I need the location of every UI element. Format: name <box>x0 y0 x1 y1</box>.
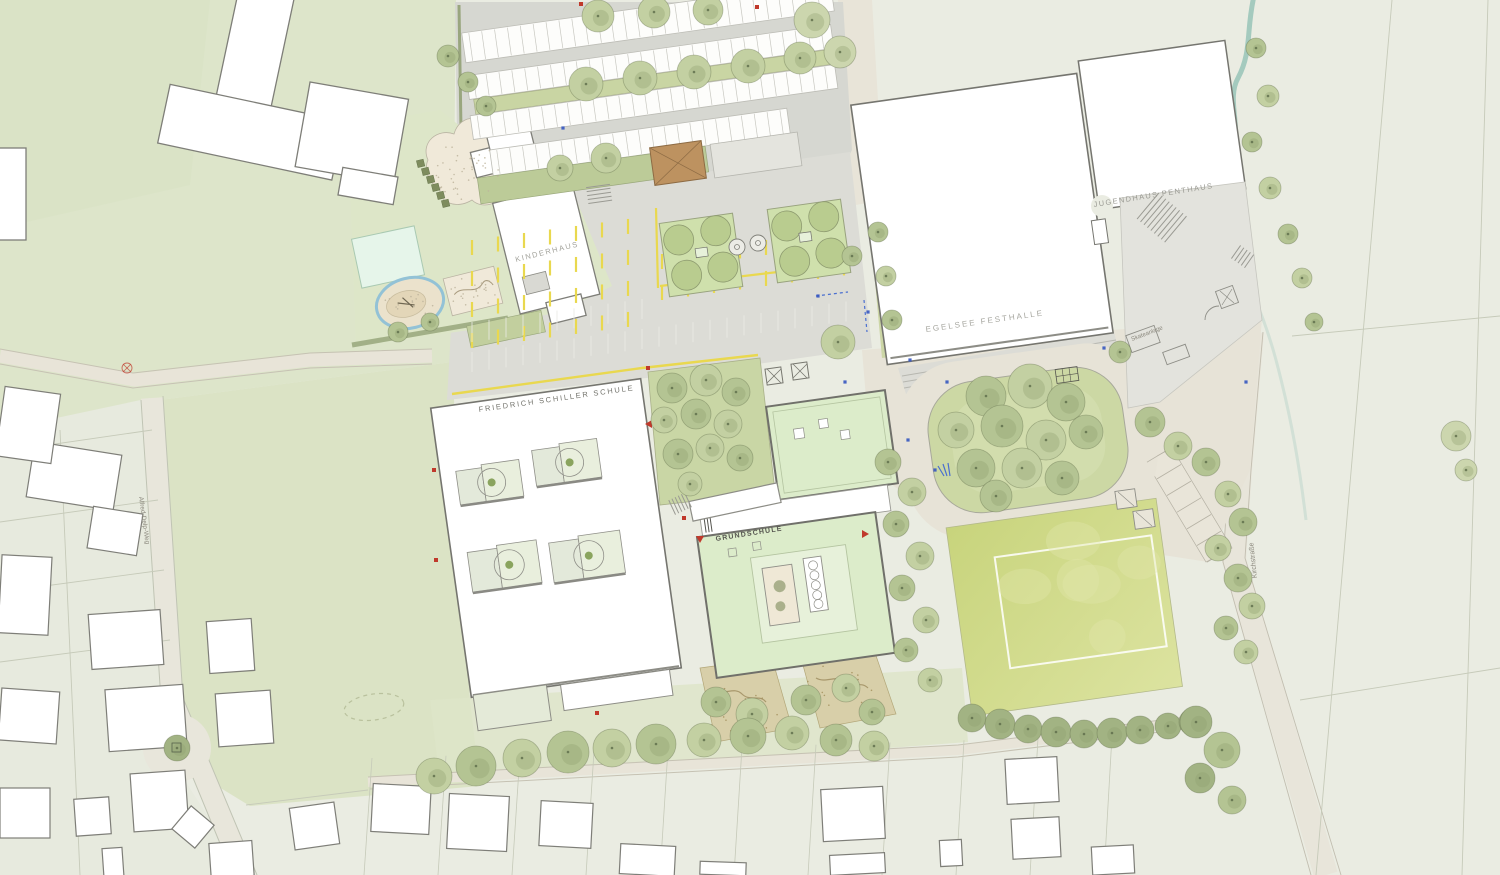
tree-icon <box>1205 535 1231 561</box>
tree-icon <box>421 313 439 331</box>
house <box>1011 817 1061 859</box>
tree-icon <box>696 434 724 462</box>
tree-icon <box>1185 763 1215 793</box>
planter-box <box>431 183 439 191</box>
entrance-marker-red <box>595 711 599 715</box>
tree-icon <box>875 449 901 475</box>
tree-icon <box>681 399 711 429</box>
tree-icon <box>859 699 885 725</box>
field-mottle <box>1057 559 1100 602</box>
tree-icon <box>958 704 986 732</box>
field-mottle <box>1089 619 1126 654</box>
marker-blue <box>908 358 911 361</box>
tree-icon <box>663 439 693 469</box>
tree-icon <box>437 45 459 67</box>
tree-icon <box>1224 564 1252 592</box>
house <box>209 841 254 875</box>
house <box>0 386 61 463</box>
tree-icon <box>569 67 603 101</box>
tree-icon <box>638 0 670 28</box>
house <box>289 802 339 850</box>
tree-icon <box>547 731 589 773</box>
tree-icon <box>731 49 765 83</box>
tree-icon <box>714 410 742 438</box>
planter-box <box>436 191 444 199</box>
tree-icon <box>906 542 934 570</box>
tree-icon <box>889 575 915 601</box>
tree-icon <box>824 36 856 68</box>
tree-icon <box>985 709 1015 739</box>
house <box>0 555 52 636</box>
tree-icon <box>582 0 614 32</box>
tree-icon <box>1218 786 1246 814</box>
tree-icon <box>1164 432 1192 460</box>
tree-icon <box>164 735 190 761</box>
house <box>0 788 50 838</box>
marker-blue <box>816 294 819 297</box>
tree-icon <box>623 61 657 95</box>
tree-icon <box>1047 383 1085 421</box>
site-plan: FRIEDRICH SCHILLER SCHULE GRUNDSCHULE KI… <box>0 0 1500 875</box>
tree-icon <box>821 325 855 359</box>
tree-icon <box>547 155 573 181</box>
tree-icon <box>1246 38 1266 58</box>
tree-icon <box>388 322 408 342</box>
tree-icon <box>859 731 889 761</box>
grundschule-upper-roof <box>766 390 898 500</box>
tree-icon <box>678 472 702 496</box>
planter-box <box>426 175 434 183</box>
field-mottle <box>998 569 1051 605</box>
house <box>371 784 431 835</box>
tree-icon <box>1097 718 1127 748</box>
site-plan-svg: FRIEDRICH SCHILLER SCHULE GRUNDSCHULE KI… <box>0 0 1500 875</box>
tree-icon <box>1155 713 1181 739</box>
entrance-marker-red <box>682 516 686 520</box>
house <box>87 506 143 555</box>
play-island <box>767 199 851 283</box>
play-island <box>659 213 743 297</box>
tree-icon <box>876 266 896 286</box>
play-equipment <box>799 232 812 243</box>
house <box>102 847 124 875</box>
house <box>1005 757 1059 805</box>
entrance-marker-red <box>646 366 650 370</box>
tree-icon <box>1008 364 1052 408</box>
tree-icon <box>1002 448 1042 488</box>
tree-icon <box>476 96 496 116</box>
tree-icon <box>1292 268 1312 288</box>
tree-icon <box>898 478 926 506</box>
entrance-marker-red <box>432 468 436 472</box>
tree-icon <box>980 480 1012 512</box>
planter-box <box>441 199 449 207</box>
tree-icon <box>1014 715 1042 743</box>
tree-icon <box>820 724 852 756</box>
marker-blue <box>866 310 869 313</box>
house <box>830 853 886 875</box>
tree-icon <box>1041 717 1071 747</box>
marker-blue <box>843 380 846 383</box>
field-mottle <box>1117 546 1160 580</box>
tree-icon <box>503 739 541 777</box>
tree-icon <box>416 758 452 794</box>
tree-icon <box>775 716 809 750</box>
tree-icon <box>456 746 496 786</box>
marker-blue <box>1244 380 1247 383</box>
house <box>206 618 255 673</box>
entrance-marker-red <box>755 5 759 9</box>
house <box>700 861 746 875</box>
tree-icon <box>842 246 862 266</box>
house <box>88 610 164 670</box>
tree-icon <box>1109 341 1131 363</box>
marker-blue <box>906 438 909 441</box>
house <box>821 786 886 841</box>
house <box>447 793 510 851</box>
tree-icon <box>1215 481 1241 507</box>
tree-icon <box>687 723 721 757</box>
tree-icon <box>791 685 821 715</box>
tree-icon <box>882 310 902 330</box>
play-equipment <box>695 247 708 258</box>
marker-blue <box>933 468 936 471</box>
house <box>0 688 60 744</box>
tree-icon <box>1069 415 1103 449</box>
tree-icon <box>657 373 687 403</box>
house <box>939 839 962 866</box>
tree-icon <box>913 607 939 633</box>
tree-icon <box>832 674 860 702</box>
tree-icon <box>1234 640 1258 664</box>
entrance-marker-red <box>579 2 583 6</box>
planter-box <box>421 167 429 175</box>
tree-icon <box>1229 508 1257 536</box>
tree-icon <box>1045 461 1079 495</box>
tree-icon <box>636 724 676 764</box>
tree-icon <box>722 378 750 406</box>
tree-icon <box>1455 459 1477 481</box>
tree-icon <box>1214 616 1238 640</box>
marker-blue <box>561 126 564 129</box>
entrance-marker-red <box>434 558 438 562</box>
tree-icon <box>981 405 1023 447</box>
building-friedrich-schiller-schule <box>431 379 686 731</box>
tree-icon <box>1180 706 1212 738</box>
house <box>1091 845 1134 875</box>
house <box>539 801 593 849</box>
tree-icon <box>794 2 830 38</box>
field-mottle <box>1046 521 1100 560</box>
tree-icon <box>1278 224 1298 244</box>
tree-icon <box>894 638 918 662</box>
planter-box <box>416 159 424 167</box>
tree-icon <box>1070 720 1098 748</box>
house <box>215 690 274 747</box>
marker-blue <box>945 380 948 383</box>
tree-icon <box>651 407 677 433</box>
outbuilding <box>0 148 26 240</box>
tree-icon <box>677 55 711 89</box>
tree-icon <box>730 718 766 754</box>
tree-icon <box>1204 732 1240 768</box>
tree-icon <box>883 511 909 537</box>
tree-icon <box>727 445 753 471</box>
tree-icon <box>593 729 631 767</box>
tree-icon <box>690 364 722 396</box>
festhalle-annex <box>1091 219 1108 245</box>
tree-icon <box>938 412 974 448</box>
tree-icon <box>701 687 731 717</box>
wood-deck <box>650 141 707 186</box>
marker-blue <box>1102 346 1105 349</box>
tree-icon <box>693 0 723 25</box>
tree-icon <box>1126 716 1154 744</box>
house <box>619 844 675 875</box>
tree-icon <box>1441 421 1471 451</box>
house <box>74 797 111 836</box>
tree-icon <box>868 222 888 242</box>
tree-icon <box>784 42 816 74</box>
tree-icon <box>1305 313 1323 331</box>
tree-icon <box>1259 177 1281 199</box>
tree-icon <box>1192 448 1220 476</box>
tree-icon <box>918 668 942 692</box>
tree-icon <box>1242 132 1262 152</box>
tree-icon <box>1239 593 1265 619</box>
tree-icon <box>458 72 478 92</box>
tree-icon <box>1135 407 1165 437</box>
tree-icon <box>1257 85 1279 107</box>
tree-icon <box>591 143 621 173</box>
